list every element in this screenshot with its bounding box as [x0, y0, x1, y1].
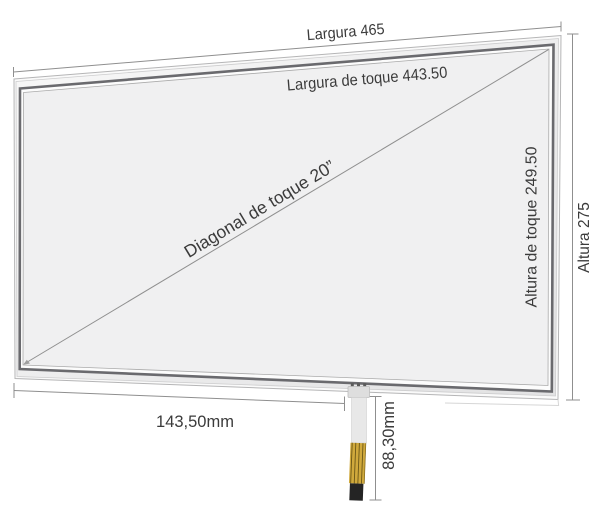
svg-text:88,30mm: 88,30mm	[380, 401, 398, 470]
svg-text:143,50mm: 143,50mm	[156, 413, 234, 431]
svg-text:Altura 275: Altura 275	[576, 202, 593, 273]
svg-text:Altura de toque 249.50: Altura de toque 249.50	[524, 146, 541, 307]
svg-text:Largura 465: Largura 465	[306, 21, 385, 44]
